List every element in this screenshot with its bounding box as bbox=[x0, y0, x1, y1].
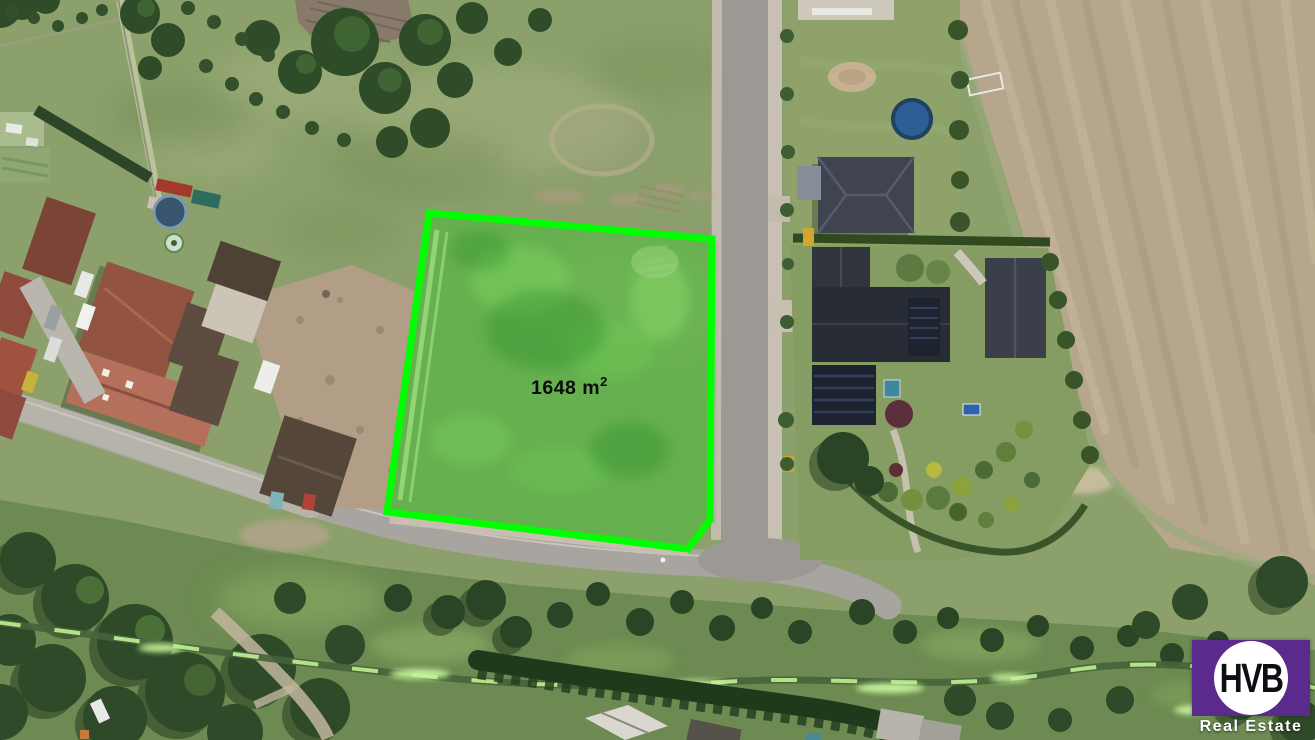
hvb-logo-tagline: Real Estate bbox=[1192, 718, 1310, 736]
plot-area-label: 1648 m2 bbox=[531, 374, 608, 399]
hvb-logo-square: HVB bbox=[1192, 640, 1310, 716]
field-track-ring bbox=[552, 106, 652, 174]
aerial-basemap: 1648 m2 bbox=[0, 0, 1315, 740]
aerial-photo: 1648 m2 HVB Real Estate bbox=[0, 0, 1315, 740]
hvb-logo: HVB Real Estate bbox=[1192, 640, 1310, 736]
hvb-logo-monogram: HVB bbox=[1205, 640, 1297, 716]
plot-highlight: 1648 m2 bbox=[387, 213, 712, 549]
